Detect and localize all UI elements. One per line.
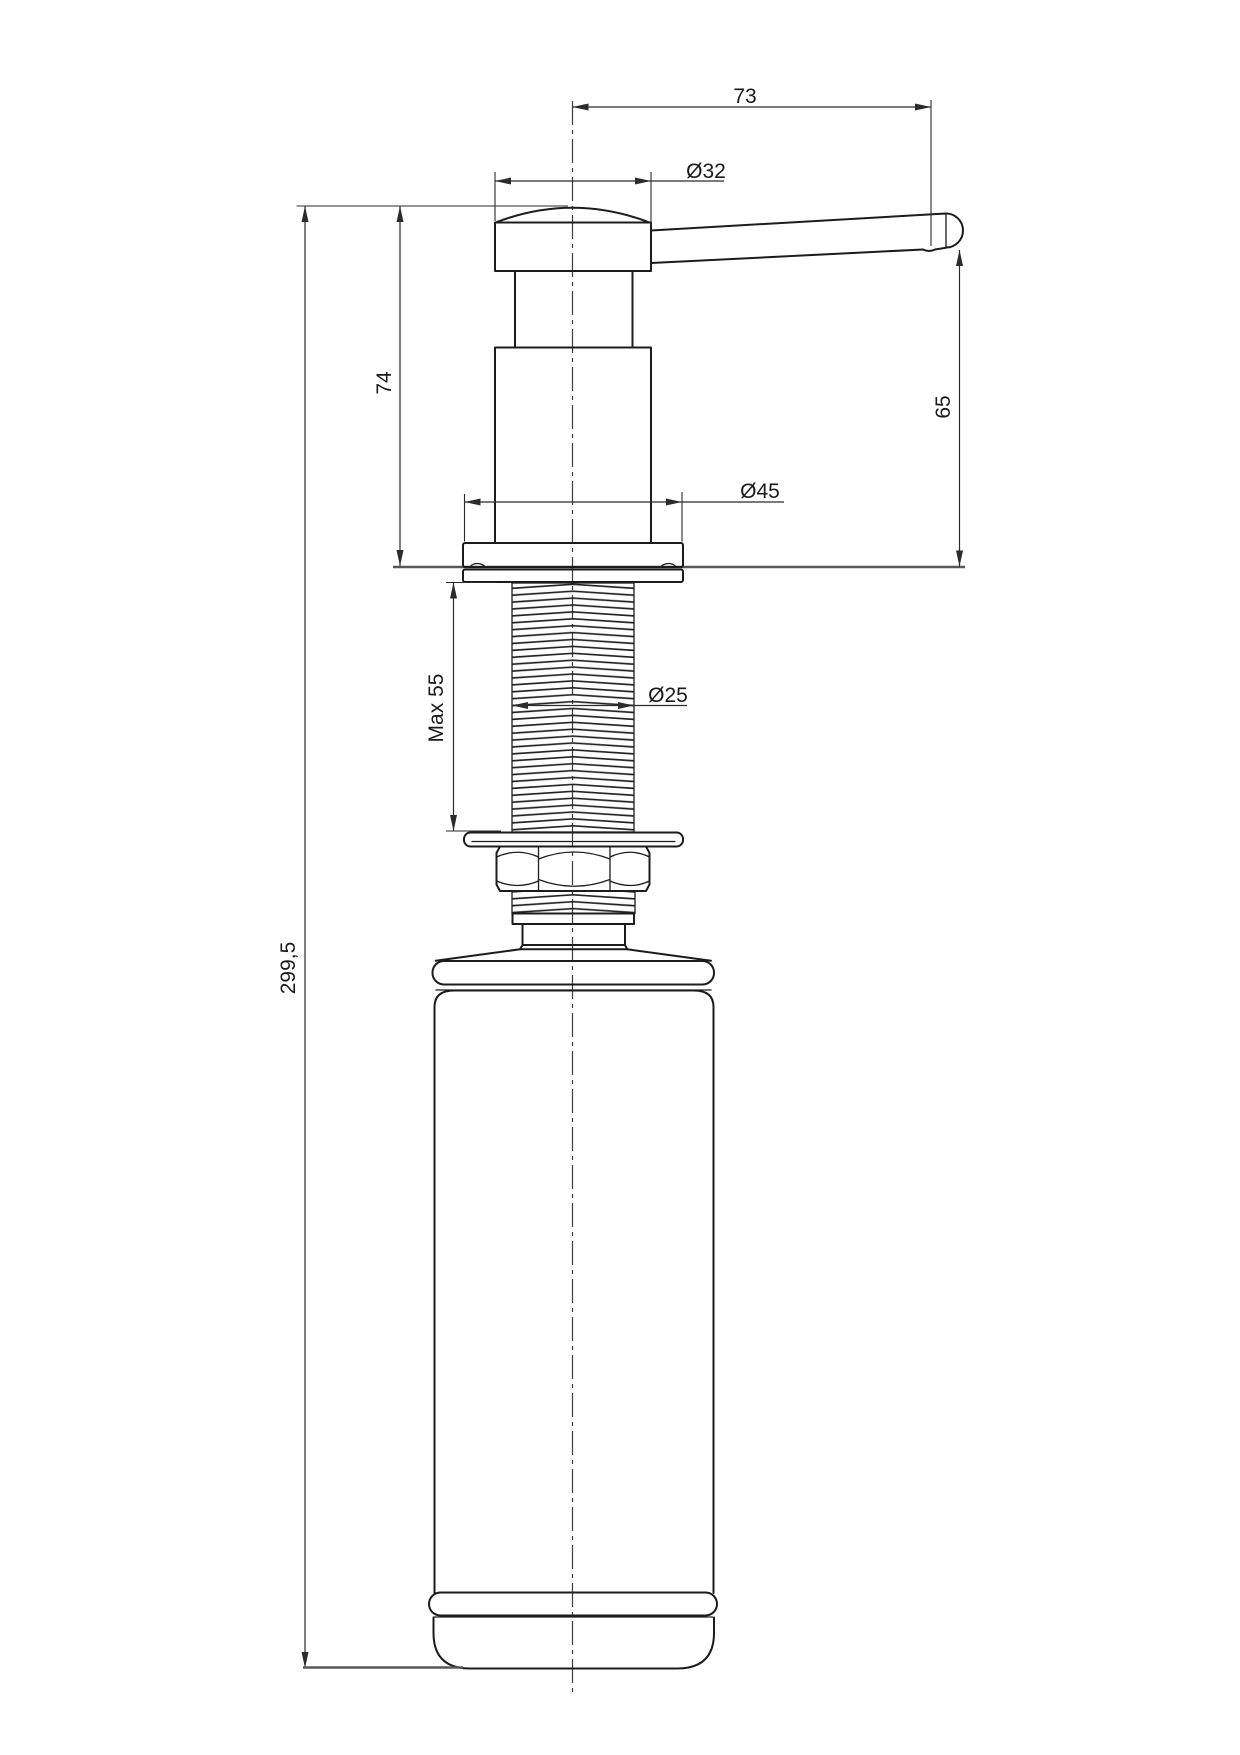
dim-label-spout-reach: 73 xyxy=(733,85,756,108)
threaded-shank xyxy=(512,583,634,832)
spout-tip-round xyxy=(946,214,963,248)
spout-top-edge xyxy=(651,214,946,231)
dimensions: 73 Ø32 74 65 Ø45 xyxy=(277,85,960,1668)
dim-label-max-counter-thickness: Max 55 xyxy=(425,674,448,743)
spout-bottom-edge xyxy=(651,248,946,263)
dim-label-thread-diameter: Ø25 xyxy=(648,684,688,707)
dimension-max-counter-thickness: Max 55 xyxy=(425,583,501,832)
nut-facet-lines xyxy=(539,847,611,892)
dim-label-height-above-counter: 74 xyxy=(373,371,396,395)
dimension-cap-diameter: Ø32 xyxy=(495,160,726,225)
washer xyxy=(464,833,683,847)
dim-label-cap-diameter: Ø32 xyxy=(686,160,726,183)
technical-drawing-page: 73 Ø32 74 65 Ø45 xyxy=(0,0,1240,1755)
head-neck xyxy=(515,271,633,348)
soap-dispenser-drawing: 73 Ø32 74 65 Ø45 xyxy=(0,0,1240,1755)
bottle-body xyxy=(435,991,714,1594)
dimension-flange-diameter: Ø45 xyxy=(465,480,785,542)
dimension-height-above-counter: 74 xyxy=(297,206,569,566)
dimension-spout-clearance: 65 xyxy=(932,250,960,567)
bottle-neck xyxy=(520,924,627,949)
washer-body xyxy=(464,833,683,847)
neck-body xyxy=(523,924,626,945)
collar xyxy=(513,914,635,925)
lower-thread xyxy=(512,891,635,914)
bottle-base-cup xyxy=(434,1618,715,1669)
shoulder-bead xyxy=(433,961,715,985)
dim-label-spout-clearance: 65 xyxy=(932,395,955,418)
dim-label-overall-height: 299,5 xyxy=(277,942,300,995)
bottle-shoulder xyxy=(436,949,711,961)
dim-label-flange-diameter: Ø45 xyxy=(740,480,780,503)
spout xyxy=(651,214,963,264)
